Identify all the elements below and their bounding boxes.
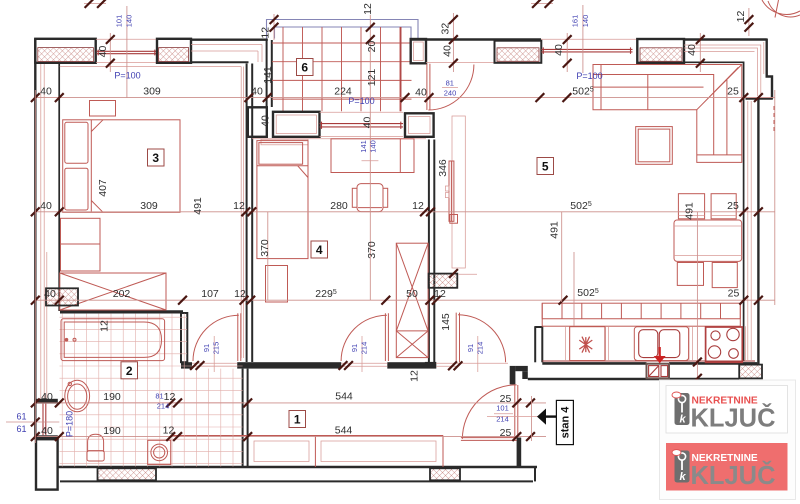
svg-text:202: 202: [113, 288, 131, 300]
svg-text:40: 40: [553, 44, 565, 56]
svg-text:40: 40: [41, 391, 53, 403]
svg-text:346: 346: [437, 159, 449, 177]
svg-text:12: 12: [412, 200, 424, 212]
svg-text:3: 3: [152, 151, 159, 165]
svg-text:370: 370: [259, 239, 271, 257]
svg-text:40: 40: [442, 45, 454, 57]
svg-text:P=100: P=100: [114, 71, 140, 81]
svg-text:40: 40: [41, 425, 53, 437]
svg-text:50: 50: [406, 288, 418, 300]
svg-text:491: 491: [548, 221, 560, 239]
svg-text:12: 12: [735, 11, 747, 23]
svg-text:40: 40: [260, 115, 272, 127]
svg-text:61: 61: [16, 424, 26, 434]
svg-text:25: 25: [728, 288, 740, 300]
svg-text:140: 140: [368, 140, 377, 153]
svg-text:25: 25: [727, 200, 739, 212]
svg-text:544: 544: [335, 425, 353, 437]
svg-text:491: 491: [684, 202, 696, 220]
svg-text:40: 40: [40, 86, 52, 98]
svg-text:190: 190: [103, 425, 121, 437]
svg-text:407: 407: [97, 179, 109, 197]
svg-text:40: 40: [415, 86, 427, 98]
svg-text:544: 544: [335, 391, 353, 403]
svg-text:32: 32: [439, 23, 451, 35]
svg-text:240: 240: [444, 89, 457, 98]
svg-text:81: 81: [155, 392, 163, 401]
svg-text:P=180: P=180: [65, 411, 75, 437]
svg-text:214: 214: [157, 402, 170, 411]
svg-text:91: 91: [466, 344, 475, 352]
svg-text:145: 145: [440, 313, 452, 331]
svg-text:215: 215: [212, 342, 221, 355]
svg-text:101: 101: [496, 404, 509, 413]
svg-text:k: k: [679, 414, 686, 426]
svg-text:4: 4: [316, 243, 323, 257]
svg-text:40: 40: [97, 46, 109, 58]
svg-text:309: 309: [143, 86, 161, 98]
svg-text:KLJUČ: KLJUČ: [691, 403, 776, 433]
svg-text:121: 121: [366, 69, 378, 87]
svg-text:140: 140: [581, 15, 590, 28]
svg-text:140: 140: [125, 15, 134, 28]
svg-text:370: 370: [366, 241, 378, 259]
svg-text:40: 40: [44, 288, 56, 300]
svg-text:k: k: [679, 471, 686, 483]
svg-text:91: 91: [350, 344, 359, 352]
svg-text:309: 309: [140, 200, 158, 212]
svg-text:214: 214: [360, 342, 369, 355]
svg-text:P=100: P=100: [348, 96, 374, 106]
svg-text:P=100: P=100: [576, 71, 602, 81]
svg-text:12: 12: [99, 320, 111, 332]
svg-text:6: 6: [301, 61, 308, 75]
svg-text:214: 214: [475, 342, 484, 355]
svg-text:107: 107: [201, 288, 219, 300]
svg-text:stan 4: stan 4: [560, 406, 572, 439]
svg-text:12: 12: [233, 200, 245, 212]
svg-text:KLJUČ: KLJUČ: [691, 460, 776, 490]
svg-text:12: 12: [234, 288, 246, 300]
svg-text:40: 40: [251, 86, 263, 98]
svg-text:91: 91: [202, 344, 211, 352]
svg-text:190: 190: [103, 391, 121, 403]
svg-text:25: 25: [727, 86, 739, 98]
svg-text:1: 1: [294, 413, 301, 427]
svg-text:12: 12: [362, 3, 374, 15]
svg-text:141: 141: [262, 66, 274, 84]
svg-text:214: 214: [496, 415, 509, 424]
svg-text:161: 161: [571, 15, 580, 28]
svg-text:2: 2: [126, 364, 133, 378]
svg-text:141: 141: [359, 140, 368, 153]
svg-text:280: 280: [330, 200, 348, 212]
svg-text:40: 40: [40, 200, 52, 212]
svg-text:81: 81: [446, 79, 454, 88]
svg-text:61: 61: [16, 412, 26, 422]
svg-text:12: 12: [163, 425, 175, 437]
svg-text:12: 12: [434, 288, 446, 300]
svg-text:5: 5: [542, 160, 549, 174]
svg-text:40: 40: [362, 117, 374, 129]
svg-text:20: 20: [366, 41, 378, 53]
svg-text:25: 25: [500, 427, 512, 439]
svg-text:491: 491: [192, 197, 204, 215]
svg-text:12: 12: [260, 27, 272, 39]
svg-text:40: 40: [686, 44, 698, 56]
svg-text:12: 12: [409, 370, 421, 382]
svg-text:101: 101: [114, 15, 123, 28]
